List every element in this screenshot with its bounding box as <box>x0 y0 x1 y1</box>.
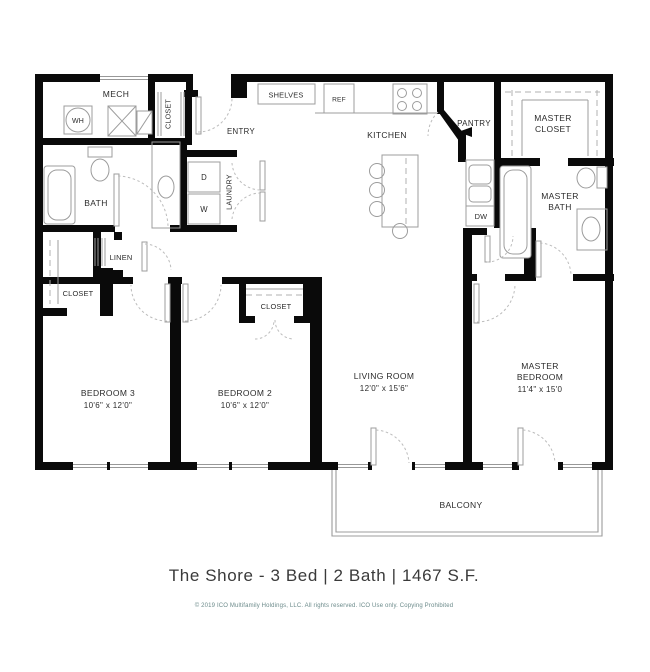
room-label-linen: LINEN <box>110 253 133 262</box>
master-vanity-sink <box>577 209 607 250</box>
room-dims-living: 12'0" x 15'6" <box>360 384 408 393</box>
bedroom2-closet-rods <box>246 289 303 295</box>
floorplan-page: MECH WH CLOSET ENTRY SHELVES REF KITCHEN… <box>0 0 650 672</box>
bedroom2-window <box>197 462 268 470</box>
fixture-label-wh: WH <box>72 118 84 125</box>
kitchen-island <box>370 155 419 239</box>
fixture-label-ref: REF <box>332 97 346 104</box>
furnace-icon <box>108 106 152 136</box>
room-label-shelves: SHELVES <box>269 91 304 100</box>
master-bath-door <box>536 241 571 277</box>
room-dims-bedroom3: 10'6" x 12'0" <box>84 401 132 410</box>
room-label-master-closet-1: MASTER <box>534 113 572 123</box>
master-closet-rods <box>505 90 600 156</box>
room-label-bedroom3: BEDROOM 3 <box>81 388 135 398</box>
room-label-balcony: BALCONY <box>439 500 482 510</box>
room-label-mech: MECH <box>103 89 129 99</box>
room-dims-bedroom2: 10'6" x 12'0" <box>221 401 269 410</box>
room-label-living: LIVING ROOM <box>354 371 415 381</box>
room-label-bedroom2: BEDROOM 2 <box>218 388 272 398</box>
bedroom2-closet-doors <box>255 320 294 339</box>
room-label-kitchen: KITCHEN <box>367 130 407 140</box>
master-balcony-door <box>518 428 555 465</box>
room-label-master-bedroom-2: BEDROOM <box>517 372 563 382</box>
fixture-label-dryer: D <box>201 173 207 182</box>
room-label-laundry: LAUNDRY <box>225 174 234 210</box>
bathtub <box>44 166 75 224</box>
floorplan-svg: MECH WH CLOSET ENTRY SHELVES REF KITCHEN… <box>0 0 650 672</box>
living-balcony-door <box>371 428 409 465</box>
room-dims-master-bedroom: 11'4" x 15'0 <box>518 385 563 394</box>
bedroom3-door <box>131 284 170 322</box>
room-label-master-bedroom-1: MASTER <box>521 361 559 371</box>
stove-icon <box>393 84 427 114</box>
fixtures <box>44 84 607 304</box>
room-label-bath: BATH <box>84 198 107 208</box>
room-label-master-bath-2: BATH <box>548 202 571 212</box>
bedroom3-window <box>73 462 148 470</box>
room-label-closet-bed2: CLOSET <box>261 302 292 311</box>
master-bathtub <box>500 166 531 258</box>
master-toilet <box>577 167 607 188</box>
room-label-closet-bed3: CLOSET <box>63 289 94 298</box>
laundry-bifold-doors <box>232 161 265 221</box>
room-label-entry-closet: CLOSET <box>164 99 173 129</box>
plan-copyright: © 2019 ICO Multifamily Holdings, LLC. Al… <box>195 602 453 609</box>
fixture-label-dw: DW <box>475 212 488 221</box>
master-bedroom-door <box>474 284 515 323</box>
room-label-entry: ENTRY <box>227 127 255 136</box>
room-label-master-bath-1: MASTER <box>541 191 579 201</box>
toilet <box>88 147 112 181</box>
room-label-pantry: PANTRY <box>457 119 491 128</box>
room-label-master-closet-2: CLOSET <box>535 124 571 134</box>
mech-vent-window <box>100 74 148 82</box>
linen-door <box>142 242 171 271</box>
bedroom2-door <box>183 284 221 322</box>
plan-title: The Shore - 3 Bed | 2 Bath | 1467 S.F. <box>169 566 479 585</box>
pantry-door <box>428 112 438 136</box>
fixture-label-washer: W <box>200 205 208 214</box>
